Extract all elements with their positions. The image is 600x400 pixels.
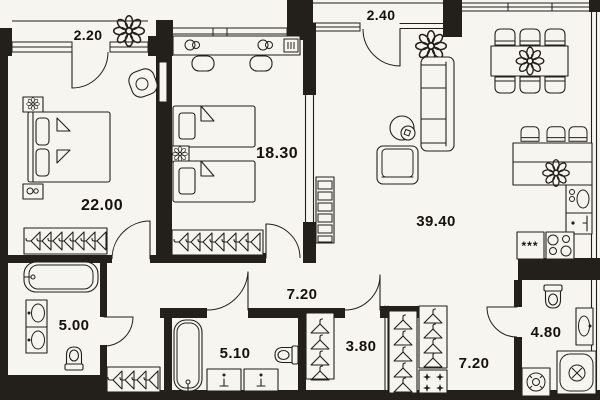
shelving bbox=[316, 177, 334, 243]
room-label-living-kitchen: 39.40 bbox=[416, 213, 456, 230]
fridge: *** bbox=[517, 232, 544, 259]
floor-plan: *** bbox=[0, 0, 600, 400]
wash-basin bbox=[26, 300, 47, 327]
plant-stand bbox=[172, 146, 189, 162]
door-arc bbox=[345, 275, 380, 310]
armchair bbox=[126, 62, 167, 102]
door-arc bbox=[363, 29, 400, 66]
room-label-bathroom-entry: 4.80 bbox=[531, 324, 562, 341]
room-bathroom-left bbox=[24, 262, 98, 370]
room-label-balcony-small: 2.20 bbox=[74, 27, 103, 43]
wash-basin bbox=[26, 327, 47, 353]
toilet bbox=[544, 285, 562, 308]
window bbox=[12, 42, 72, 52]
window bbox=[313, 23, 360, 31]
door-arc bbox=[104, 317, 133, 346]
nightstand bbox=[23, 184, 43, 199]
window bbox=[455, 3, 592, 11]
oven bbox=[566, 213, 592, 234]
door-arc bbox=[266, 224, 300, 258]
kitchen-sink bbox=[566, 185, 592, 213]
single-bed bbox=[173, 161, 255, 202]
shoe-box bbox=[419, 370, 447, 393]
nightstand bbox=[23, 97, 43, 112]
room-label-hallway: 7.20 bbox=[287, 286, 318, 303]
desk-chair bbox=[250, 56, 272, 71]
room-wardrobe-hall bbox=[389, 306, 447, 393]
door-arc bbox=[72, 52, 108, 88]
bathtub bbox=[174, 320, 202, 391]
room-label-wardrobe-hall: 7.20 bbox=[459, 355, 490, 372]
bathtub bbox=[24, 262, 98, 292]
wash-basin bbox=[244, 369, 278, 391]
room-label-closet: 3.80 bbox=[346, 338, 377, 355]
door-arc bbox=[207, 272, 248, 310]
room-label-bathroom-middle: 5.10 bbox=[220, 345, 251, 362]
single-bed bbox=[173, 106, 255, 147]
armchair bbox=[377, 146, 418, 184]
shower bbox=[557, 351, 596, 394]
room-label-bedroom-second: 18.30 bbox=[256, 145, 298, 162]
floor-lamp bbox=[390, 116, 415, 140]
room-closet bbox=[306, 313, 334, 380]
washing-machine bbox=[522, 368, 550, 396]
fridge-label: *** bbox=[521, 239, 538, 253]
corridor-hangers bbox=[107, 367, 160, 392]
room-label-balcony-top: 2.40 bbox=[367, 7, 396, 23]
door-arc bbox=[487, 307, 517, 337]
room-label-bathroom-left: 5.00 bbox=[59, 317, 90, 334]
wash-basin bbox=[576, 308, 593, 345]
toilet bbox=[65, 347, 83, 370]
dining-table bbox=[491, 46, 568, 76]
toilet bbox=[275, 346, 298, 364]
room-label-bedroom-master: 22.00 bbox=[81, 197, 123, 214]
sofa bbox=[421, 57, 454, 151]
desk bbox=[173, 36, 300, 55]
wardrobe-hangers bbox=[24, 228, 107, 254]
wardrobe-hangers bbox=[172, 230, 263, 255]
stove bbox=[546, 232, 574, 259]
desk-chair bbox=[192, 56, 214, 71]
kitchen-island bbox=[513, 127, 592, 186]
floor-plan-canvas: *** bbox=[0, 0, 600, 400]
double-bed bbox=[28, 112, 110, 182]
door-arc bbox=[112, 221, 150, 259]
wash-basin bbox=[207, 369, 241, 391]
room-bedroom-master bbox=[23, 62, 167, 254]
